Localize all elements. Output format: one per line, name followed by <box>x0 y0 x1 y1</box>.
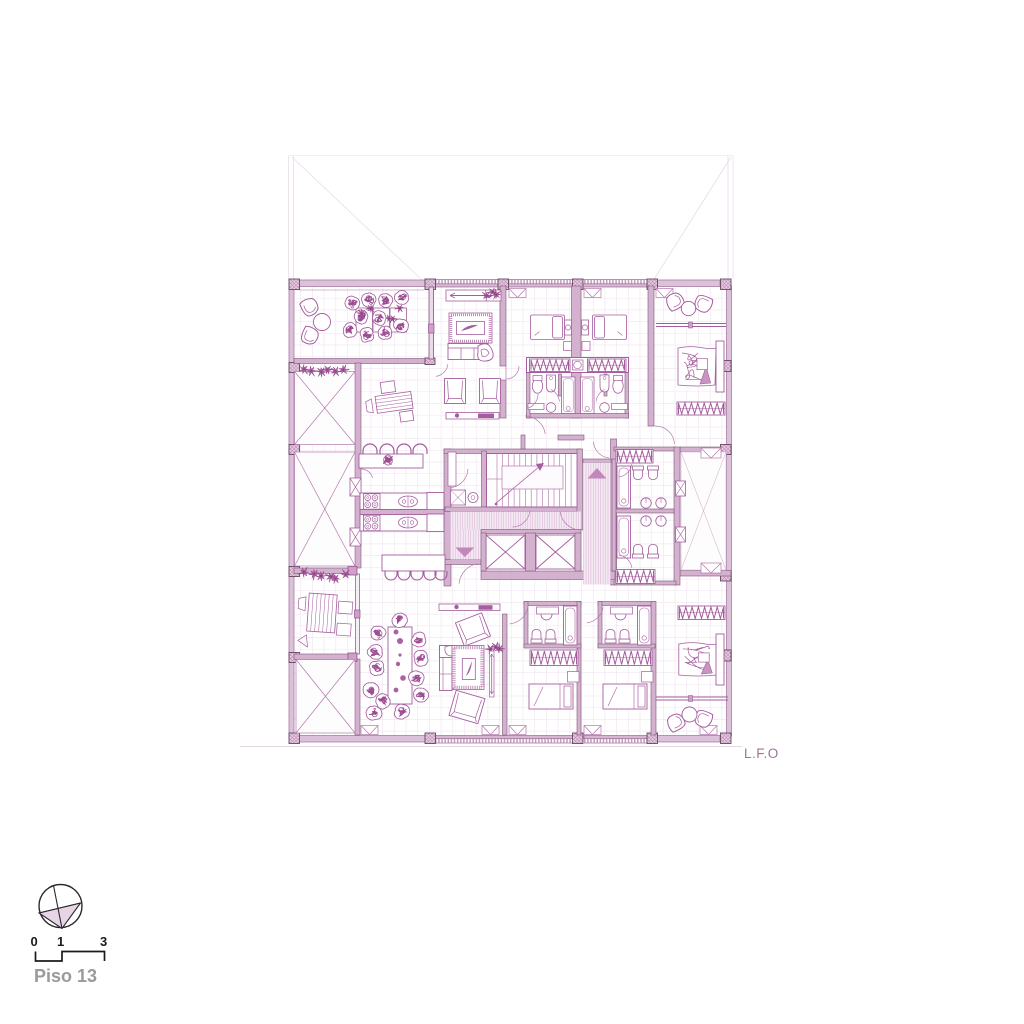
svg-text:0: 0 <box>31 934 38 949</box>
svg-text:3: 3 <box>100 934 107 949</box>
svg-text:L.F.O: L.F.O <box>744 746 779 761</box>
svg-text:1: 1 <box>57 934 64 949</box>
svg-text:Piso 13: Piso 13 <box>34 966 97 986</box>
